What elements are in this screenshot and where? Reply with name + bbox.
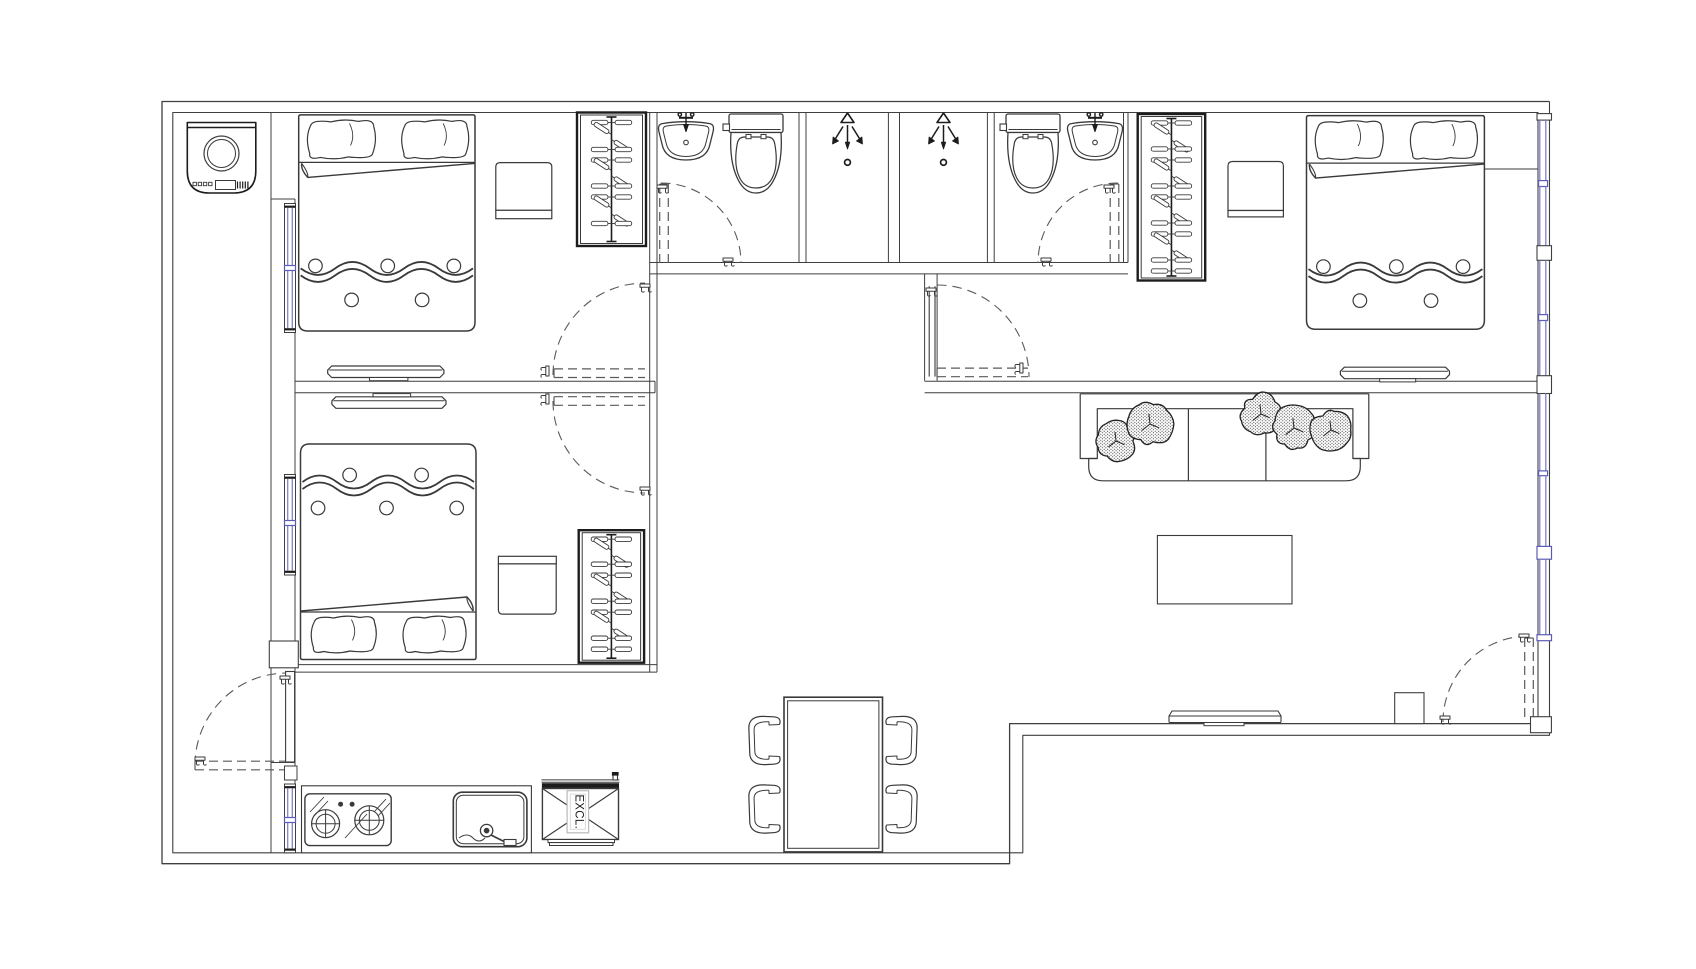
svg-text:EXCL.: EXCL. [573, 794, 585, 829]
